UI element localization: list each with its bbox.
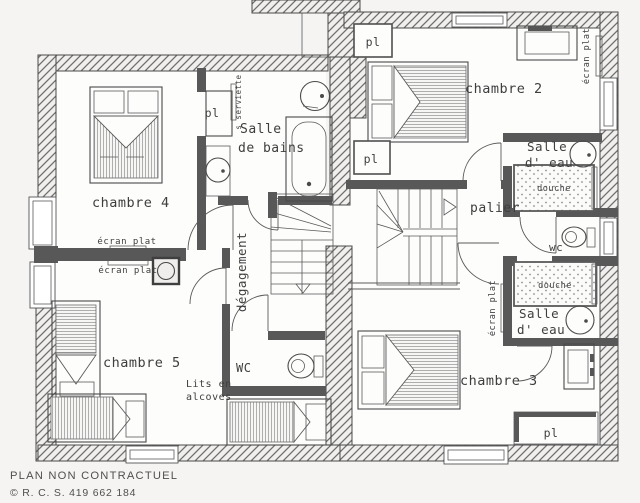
- label-pl-sdb: pl: [205, 106, 220, 120]
- room-label-palier: palier: [470, 201, 520, 216]
- label-pl-chambre2-top: pl: [366, 35, 381, 49]
- window-right-chambre2: [600, 78, 617, 130]
- room-label-chambre3: chambre 3: [460, 373, 538, 389]
- label-pl-chambre3: pl: [544, 426, 559, 440]
- footer-copyright: © R. C. S. 419 662 184: [10, 487, 136, 499]
- label-pl-chambre2-mid: pl: [364, 152, 379, 166]
- floor-plan-page: chambre 4 chambre 5 chambre 2 chambre 3 …: [0, 0, 640, 503]
- label-lits-en-alcoves-2: alcoves: [186, 392, 232, 403]
- room-label-salle-eau-bottom-2: d' eau: [517, 322, 565, 337]
- floor-plan-canvas: chambre 4 chambre 5 chambre 2 chambre 3 …: [0, 0, 640, 503]
- label-douche-top: douche: [537, 184, 571, 194]
- footer-plan-note: PLAN NON CONTRACTUEL: [10, 470, 178, 482]
- window-bottom-left: [126, 446, 178, 463]
- room-label-wc-right: wc: [549, 241, 563, 254]
- room-label-degagement: dégagement: [234, 232, 249, 312]
- window-top-right: [452, 13, 507, 27]
- room-label-salle-eau-top-1: Salle: [527, 139, 567, 154]
- window-left-upper: [29, 197, 56, 249]
- room-label-chambre2: chambre 2: [465, 81, 543, 97]
- room-label-salle-eau-top-2: d' eau: [525, 155, 573, 170]
- label-seche-serviette: s serviette: [234, 74, 243, 129]
- label-ecran-plat-chambre3: écran plat: [487, 280, 498, 336]
- room-label-wc-left: WC: [236, 361, 251, 375]
- window-bottom-right: [444, 446, 508, 464]
- room-label-salle-eau-bottom-1: Salle: [519, 306, 559, 321]
- room-label-chambre4: chambre 4: [92, 195, 170, 211]
- room-label-salle-de-bains-1: Salle: [240, 122, 282, 137]
- window-left-lower: [30, 262, 55, 308]
- window-right-wc: [600, 218, 617, 258]
- room-label-chambre5: chambre 5: [103, 355, 181, 371]
- label-lits-en-alcoves-1: Lits en: [186, 379, 232, 390]
- label-ecran-plat-chambre5: écran plat: [98, 265, 157, 276]
- label-ecran-plat-chambre2: écran plat: [581, 28, 592, 84]
- label-douche-bottom: douche: [538, 281, 572, 291]
- label-ecran-plat-chambre4: écran plat: [97, 236, 156, 247]
- room-label-salle-de-bains-2: de bains: [238, 141, 305, 156]
